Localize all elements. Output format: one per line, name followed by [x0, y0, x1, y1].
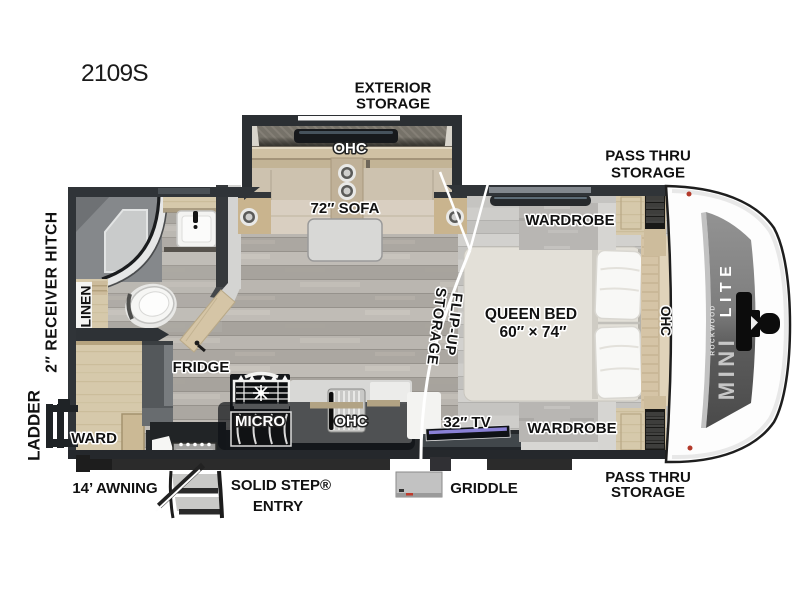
svg-text:LADDER: LADDER [25, 390, 44, 461]
svg-text:ENTRY: ENTRY [253, 498, 303, 515]
svg-text:LINEN: LINEN [78, 286, 94, 328]
svg-text:WARDROBE: WARDROBE [527, 420, 616, 437]
svg-text:2109S: 2109S [81, 60, 148, 87]
svg-text:32″ TV: 32″ TV [443, 414, 490, 431]
svg-text:OHC: OHC [334, 413, 368, 430]
svg-text:QUEEN BED: QUEEN BED [485, 306, 577, 323]
svg-text:SOLID STEP®: SOLID STEP® [231, 477, 331, 494]
svg-text:FRIDGE: FRIDGE [173, 359, 230, 376]
svg-text:LITE: LITE [718, 261, 735, 318]
svg-text:STORAGE: STORAGE [356, 96, 430, 113]
svg-text:EXTERIOR: EXTERIOR [355, 80, 432, 97]
svg-text:2″ RECEIVER HITCH: 2″ RECEIVER HITCH [44, 211, 61, 372]
svg-text:OHC: OHC [333, 140, 367, 157]
svg-text:MINI: MINI [714, 336, 739, 400]
svg-text:STORAGE: STORAGE [611, 165, 685, 182]
svg-text:14’ AWNING: 14’ AWNING [72, 480, 157, 497]
svg-text:72″ SOFA: 72″ SOFA [311, 200, 380, 217]
svg-text:60″ × 74″: 60″ × 74″ [500, 324, 568, 341]
svg-text:STORAGE: STORAGE [611, 484, 685, 501]
svg-text:MICRO: MICRO [235, 413, 285, 430]
svg-text:WARD: WARD [71, 430, 117, 447]
svg-text:GRIDDLE: GRIDDLE [450, 480, 518, 497]
svg-text:PASS THRU: PASS THRU [605, 148, 691, 165]
svg-text:WARDROBE: WARDROBE [525, 212, 614, 229]
svg-text:OHC: OHC [658, 306, 673, 336]
